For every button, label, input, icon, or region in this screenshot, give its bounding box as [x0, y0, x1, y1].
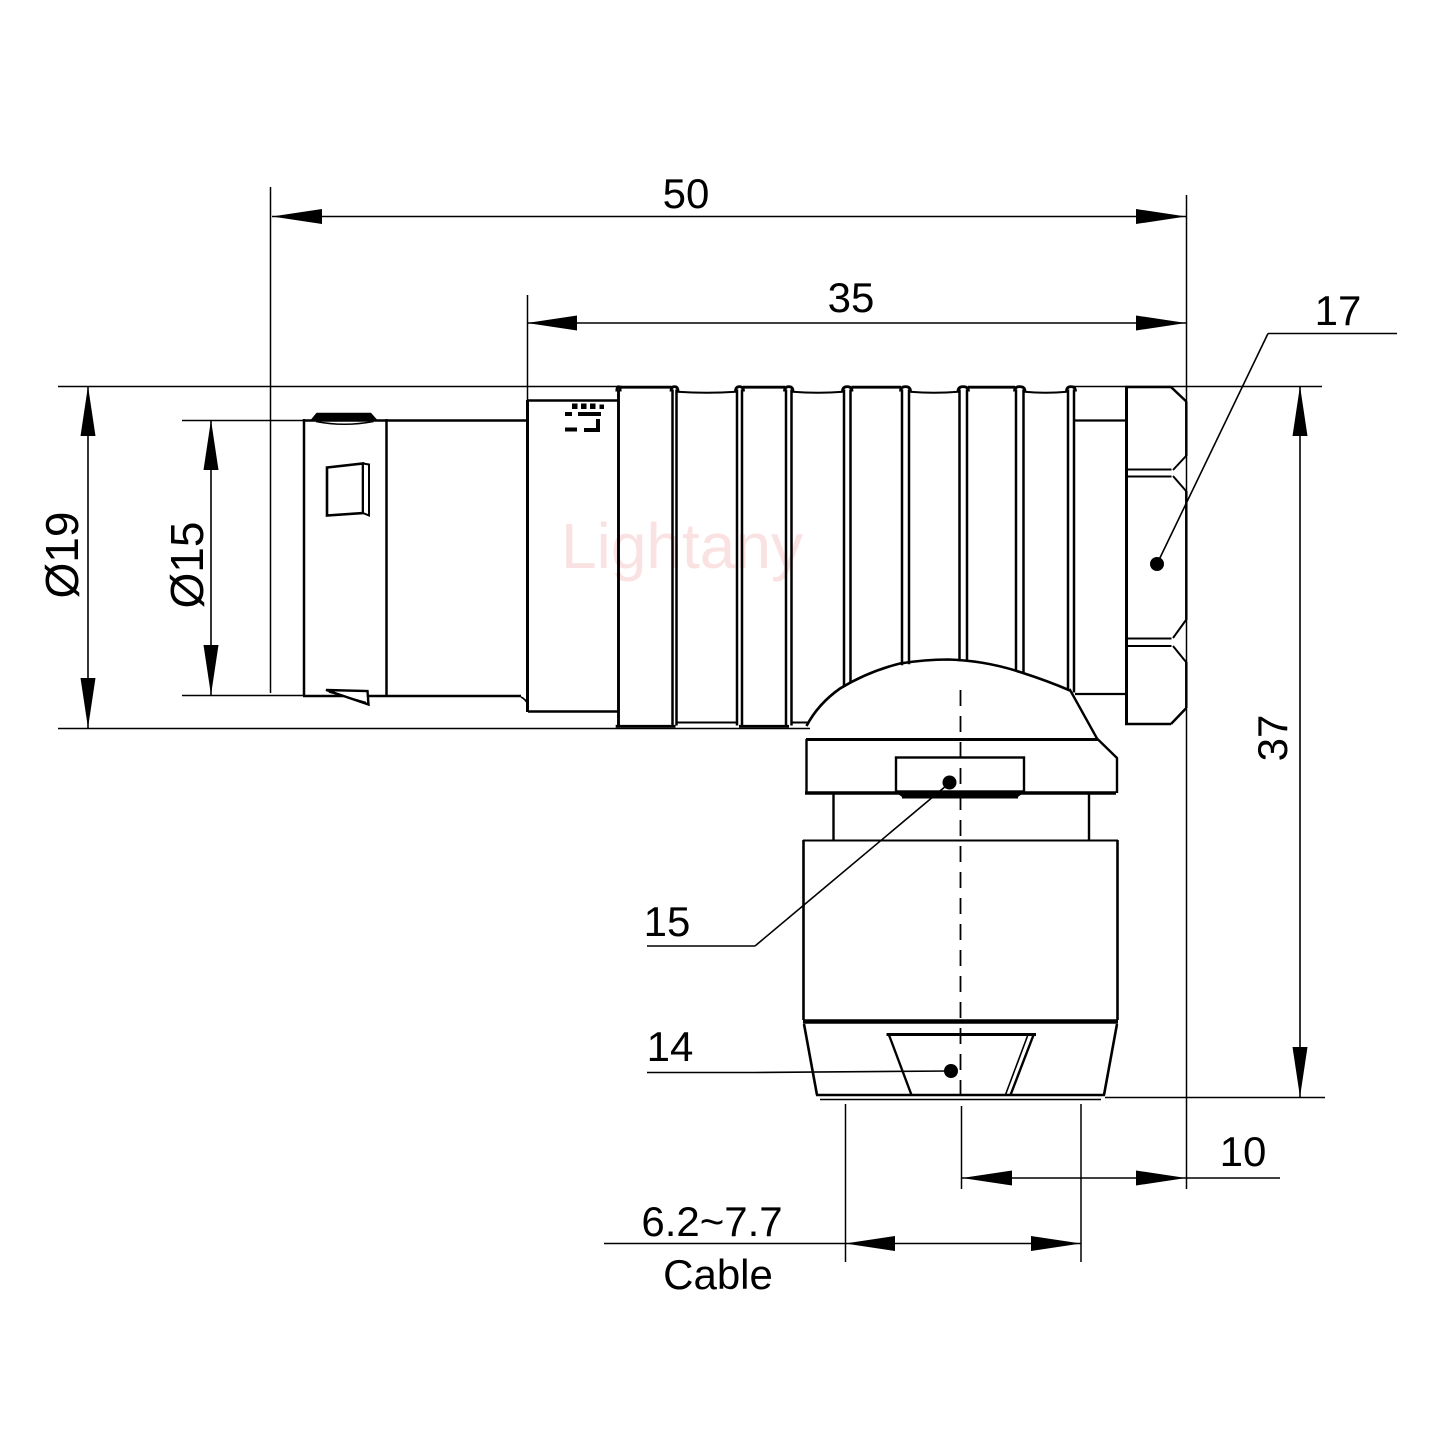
svg-text:37: 37 — [1249, 715, 1296, 762]
svg-text:14: 14 — [647, 1023, 694, 1070]
svg-text:Ø15: Ø15 — [161, 522, 213, 609]
svg-text:Ø19: Ø19 — [36, 512, 88, 599]
svg-text:Lightany: Lightany — [561, 510, 803, 582]
svg-text:17: 17 — [1315, 287, 1362, 334]
svg-text:50: 50 — [663, 170, 710, 217]
svg-text:6.2~7.7: 6.2~7.7 — [641, 1198, 782, 1245]
svg-text:10: 10 — [1220, 1128, 1267, 1175]
svg-text:Cable: Cable — [663, 1251, 773, 1298]
svg-text:35: 35 — [828, 274, 875, 321]
svg-text:15: 15 — [644, 898, 691, 945]
